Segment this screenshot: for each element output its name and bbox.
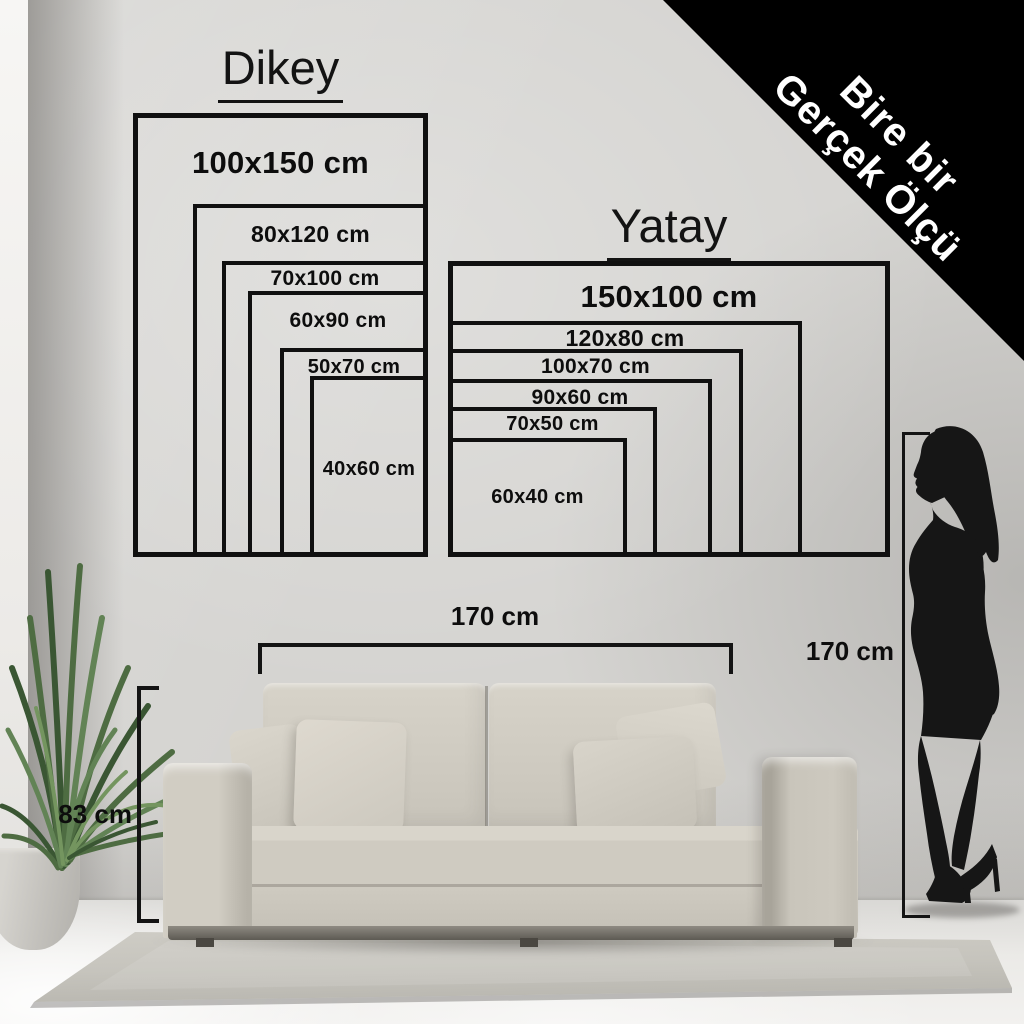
dikey-size-label-50x70: 50x70 cm xyxy=(280,356,428,379)
sofa-armrest-left xyxy=(163,763,252,938)
sofa-leg-left xyxy=(196,938,214,947)
dikey-size-label-100x150: 100x150 cm xyxy=(133,145,428,181)
dikey-size-label-70x100: 70x100 cm xyxy=(222,267,428,291)
sofa-seat-seam xyxy=(178,884,842,887)
dikey-size-label-80x120: 80x120 cm xyxy=(193,221,428,248)
sofa-leg-right xyxy=(834,938,852,947)
sofa-base xyxy=(168,926,854,940)
dikey-size-label-60x90: 60x90 cm xyxy=(248,309,428,333)
sofa-seat xyxy=(163,826,858,936)
yatay-size-label-120x80: 120x80 cm xyxy=(448,325,802,352)
sofa-height-bracket xyxy=(137,686,159,923)
wall-shadow-band xyxy=(28,0,124,906)
yatay-size-label-70x50: 70x50 cm xyxy=(448,413,657,436)
yatay-size-label-100x70: 100x70 cm xyxy=(448,355,743,379)
pillow-4 xyxy=(573,736,698,835)
yatay-size-label-90x60: 90x60 cm xyxy=(448,386,712,410)
size-guide-poster: Dikey 100x150 cm 80x120 cm 70x100 cm 60x… xyxy=(0,0,1024,1024)
dikey-size-label-40x60: 40x60 cm xyxy=(310,458,428,481)
sofa-height-label: 83 cm xyxy=(40,799,132,830)
sofa-leg-center xyxy=(520,938,538,947)
dikey-chart-title: Dikey xyxy=(133,40,428,103)
sofa-width-label: 170 cm xyxy=(425,601,565,632)
sofa-width-bracket xyxy=(258,643,733,674)
person-height-bracket xyxy=(902,432,930,918)
wall-light-strip xyxy=(0,0,28,906)
yatay-size-label-60x40: 60x40 cm xyxy=(448,486,627,509)
person-height-label: 170 cm xyxy=(786,636,894,667)
sofa-back-seam xyxy=(485,686,488,830)
pillow-2 xyxy=(293,719,407,833)
sofa-armrest-right xyxy=(762,757,857,938)
